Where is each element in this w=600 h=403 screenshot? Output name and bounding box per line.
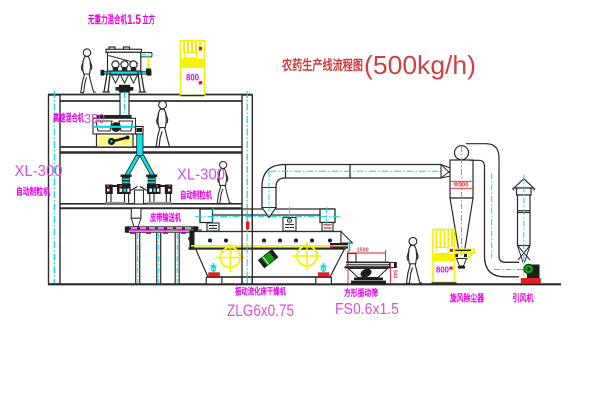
svg-text:立方: 立方 [143, 13, 156, 26]
svg-text:皮带输送机: 皮带输送机 [149, 212, 181, 224]
svg-text:XL-300: XL-300 [15, 163, 63, 180]
svg-text:XL-300: XL-300 [177, 167, 225, 184]
svg-text:800: 800 [186, 73, 199, 83]
svg-text:800: 800 [436, 265, 449, 275]
svg-text:350: 350 [84, 111, 105, 126]
svg-text:方形振动筛: 方形振动筛 [344, 287, 378, 298]
svg-text:(500kg/h): (500kg/h) [364, 50, 476, 80]
svg-text:540: 540 [392, 270, 398, 279]
svg-text:1.5: 1.5 [127, 11, 141, 27]
svg-text:高速混合机: 高速混合机 [53, 112, 84, 125]
svg-text:自动制粒机: 自动制粒机 [180, 190, 212, 202]
svg-text:FS0.6x1.5: FS0.6x1.5 [335, 301, 399, 318]
svg-text:无重力混合机: 无重力混合机 [87, 13, 127, 26]
svg-text:引风机: 引风机 [513, 293, 534, 305]
svg-text:自动制粒机: 自动制粒机 [16, 186, 50, 198]
svg-text:ZLG6x0.75: ZLG6x0.75 [227, 301, 294, 320]
svg-text:振动流化床干燥机: 振动流化床干燥机 [235, 286, 286, 297]
svg-text:旋风除尘器: 旋风除尘器 [449, 293, 484, 305]
svg-text:1500: 1500 [357, 248, 369, 254]
svg-text:农药生产线流程图: 农药生产线流程图 [281, 57, 363, 73]
